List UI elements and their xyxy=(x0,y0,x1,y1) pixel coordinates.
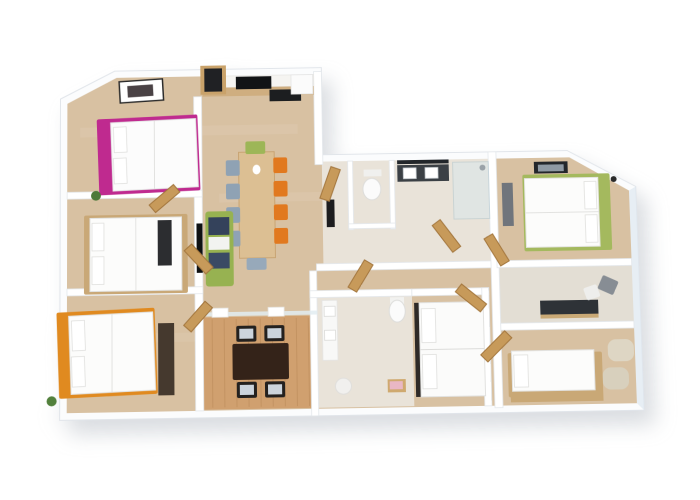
terrace-table xyxy=(232,343,289,380)
dining-chair-left-2 xyxy=(226,184,240,200)
kitchen-tv xyxy=(236,76,272,89)
terrace-pillar-left xyxy=(212,308,228,317)
bathroom-bottom-mat xyxy=(335,378,351,394)
dining-chair-right-1 xyxy=(273,157,287,173)
terrace-chair-2-cushion xyxy=(267,328,281,338)
wc-toilet-tank xyxy=(364,169,382,176)
bathroom-bottom-toilet xyxy=(389,300,405,322)
wall-wc-west xyxy=(348,161,354,230)
terrace-chair-4-cushion xyxy=(268,384,282,394)
bedroom-right-pillow xyxy=(514,355,529,387)
bedroom-middle-pillow-1 xyxy=(92,223,104,251)
dining-chair-left-1 xyxy=(226,160,240,176)
bedroom-green-pillow-2 xyxy=(585,215,598,243)
dining-chair-right-2 xyxy=(274,181,288,197)
kitchen-oven-front xyxy=(204,68,222,91)
bathroom-bottom-towels xyxy=(390,381,403,389)
wall-art-photo xyxy=(127,84,153,97)
wc-toilet xyxy=(363,178,381,200)
living-sofa-throw xyxy=(208,237,229,250)
bedroom-middle-media-unit xyxy=(158,220,172,266)
bathroom-top-sink-2 xyxy=(425,167,438,178)
bedroom-magenta-pillow-2 xyxy=(113,158,127,184)
bedroom-orange-desk xyxy=(158,323,174,395)
wall-wc-east xyxy=(389,160,395,229)
bedroom-center-pillow-1 xyxy=(421,308,436,342)
bedroom-green-art-photo xyxy=(538,164,564,171)
floor-plan-tilt-wrapper xyxy=(0,2,700,500)
bedroom-green-dresser xyxy=(502,183,514,226)
terrace-chair-3-cushion xyxy=(240,385,254,395)
bedroom-right-pouf-1 xyxy=(607,339,634,361)
dining-chair-right-3 xyxy=(274,204,288,220)
bedroom-orange-pillow-2 xyxy=(71,356,85,387)
dining-chair-head-green xyxy=(245,141,265,154)
bathroom-top-sink-1 xyxy=(403,168,416,179)
terrace-chair-1-cushion xyxy=(239,329,253,339)
terrace-pillar-right xyxy=(268,307,284,316)
bedroom-orange-pillow-1 xyxy=(71,320,85,351)
bedroom-center-pillow-2 xyxy=(422,354,437,388)
deck-plank-1 xyxy=(212,319,213,407)
bedroom-magenta-pillow-1 xyxy=(113,127,127,153)
wall-bathroom-bottom-north xyxy=(310,289,412,298)
bedroom-orange-plant xyxy=(47,396,57,406)
wall-wc-south xyxy=(349,223,396,229)
bedroom-middle-pillow-2 xyxy=(92,257,104,285)
hallway-radiator xyxy=(326,200,334,228)
bathroom-bottom-sink-2 xyxy=(324,330,335,340)
bedroom-green-pillow-1 xyxy=(584,181,597,209)
bathroom-bottom-sink-1 xyxy=(324,306,335,316)
shower-glass-enclosure xyxy=(453,162,490,219)
kitchen-fridge xyxy=(291,75,313,95)
floor-plan-svg xyxy=(0,2,700,500)
living-sofa-cushion-1 xyxy=(208,217,229,235)
wall-bedroom-center-north xyxy=(412,288,489,296)
dining-chair-right-4 xyxy=(274,228,288,244)
wall-kitchen-east xyxy=(314,71,323,164)
bedroom-right-pouf-2 xyxy=(602,367,629,390)
floor-plan-3d-render xyxy=(0,0,700,500)
dining-chair-foot-gray xyxy=(247,258,267,270)
